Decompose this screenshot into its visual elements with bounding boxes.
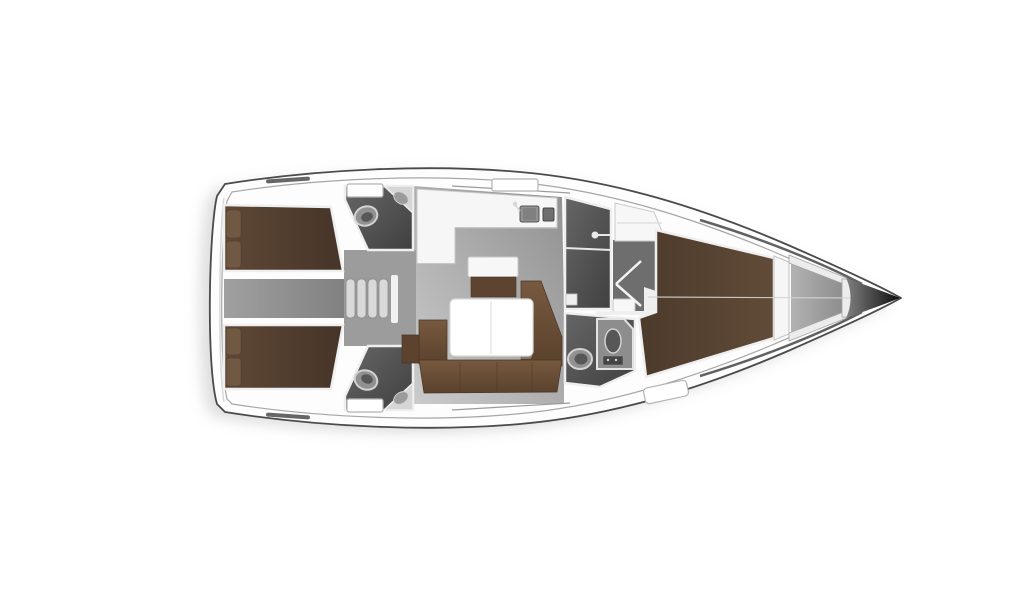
shelf <box>613 299 635 312</box>
shower-head-icon <box>592 232 599 239</box>
sink-unit-knob <box>607 359 609 361</box>
sink-basin-icon <box>605 329 621 353</box>
sofa-left-arm <box>419 320 447 364</box>
toilet-bowl-icon <box>575 354 588 365</box>
pillow <box>226 241 241 268</box>
forward-shower-floor <box>565 197 611 309</box>
yacht-floor-plan <box>0 0 1024 600</box>
sink-unit-detail <box>603 356 623 365</box>
shower-step-box <box>566 294 577 305</box>
step-tread <box>379 279 388 318</box>
galley-sink-basin <box>523 208 536 220</box>
pillow <box>226 210 241 238</box>
door-leaf <box>644 287 656 311</box>
sofa-bench <box>419 360 562 393</box>
deck-hatch <box>492 179 538 191</box>
galley-stove <box>543 208 554 221</box>
deck-hatch <box>347 399 383 412</box>
pillow <box>226 358 241 386</box>
pillow <box>226 328 241 355</box>
dinette-cabinet-front <box>471 277 516 297</box>
sofa-left-cap <box>402 335 419 363</box>
aft-corridor-floor <box>224 279 346 318</box>
deck-hatch <box>347 184 383 197</box>
sink-unit-knob <box>615 359 617 361</box>
step-tread <box>346 279 355 318</box>
companionway-threshold <box>391 275 398 323</box>
aft-cabin-starboard-bed <box>224 325 343 389</box>
step-tread <box>368 279 377 318</box>
step-tread <box>357 279 366 318</box>
aft-cabin-port-bed <box>224 205 343 271</box>
dinette-cabinet-top <box>468 257 518 277</box>
